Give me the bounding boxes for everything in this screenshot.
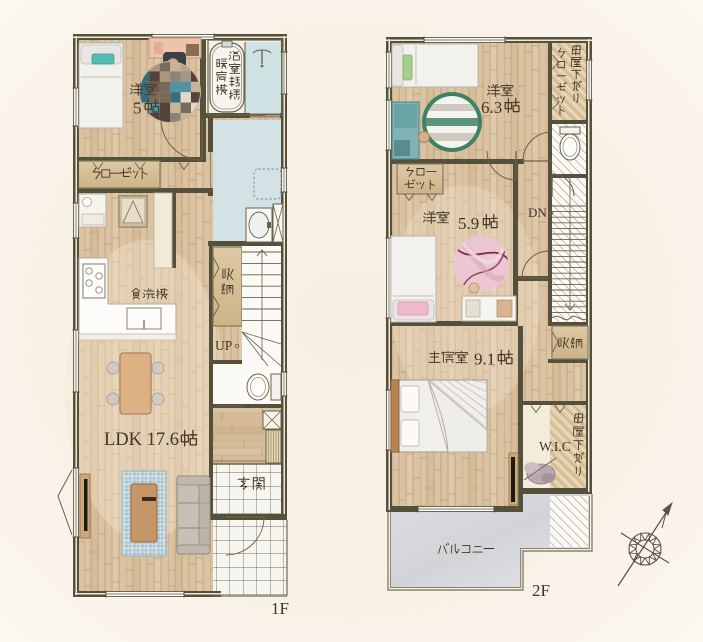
svg-text:LDK 17.6: LDK 17.6	[104, 430, 179, 450]
svg-text:2F: 2F	[532, 581, 550, 600]
svg-text:5.9: 5.9	[458, 214, 479, 233]
svg-text:1F: 1F	[271, 599, 289, 618]
svg-text:9.1: 9.1	[474, 350, 495, 369]
svg-text:UP: UP	[215, 338, 232, 353]
svg-text:5: 5	[133, 99, 142, 118]
svg-text:6.3: 6.3	[481, 98, 502, 117]
svg-text:W.I.C: W.I.C	[539, 439, 571, 454]
svg-text:DN: DN	[528, 205, 547, 220]
